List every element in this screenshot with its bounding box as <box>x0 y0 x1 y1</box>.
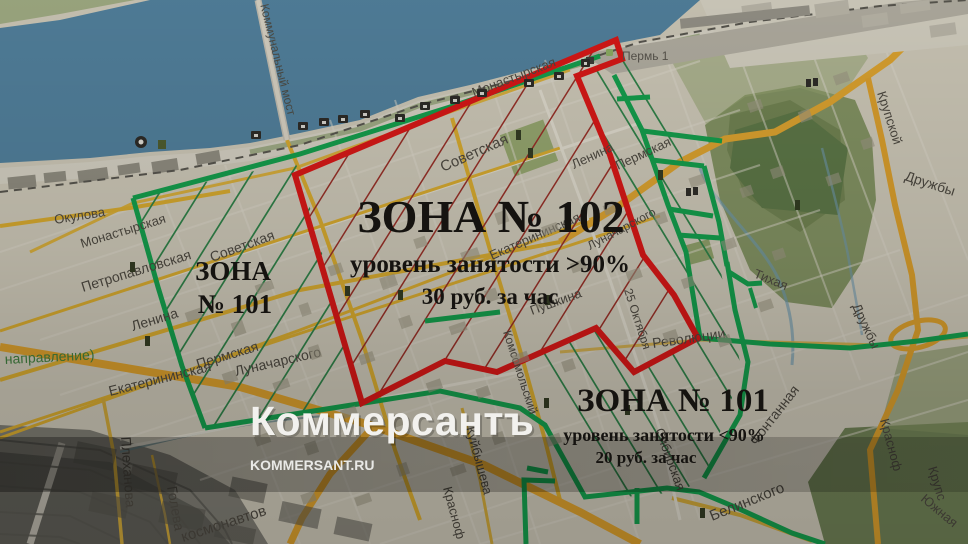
svg-text:Коммерсантъ: Коммерсантъ <box>250 398 534 444</box>
svg-text:ЗОНА № 102: ЗОНА № 102 <box>357 191 624 242</box>
svg-text:30 руб. за час: 30 руб. за час <box>422 284 559 309</box>
svg-text:уровень занятости <90%: уровень занятости <90% <box>563 425 765 445</box>
svg-text:ЗОНА № 101: ЗОНА № 101 <box>577 383 769 419</box>
svg-text:KOMMERSANT.RU: KOMMERSANT.RU <box>250 457 374 473</box>
svg-text:ЗОНА: ЗОНА <box>195 256 271 286</box>
svg-text:20 руб. за час: 20 руб. за час <box>596 448 697 467</box>
svg-text:№ 101: № 101 <box>198 289 272 319</box>
svg-text:уровень занятости >90%: уровень занятости >90% <box>350 251 630 278</box>
